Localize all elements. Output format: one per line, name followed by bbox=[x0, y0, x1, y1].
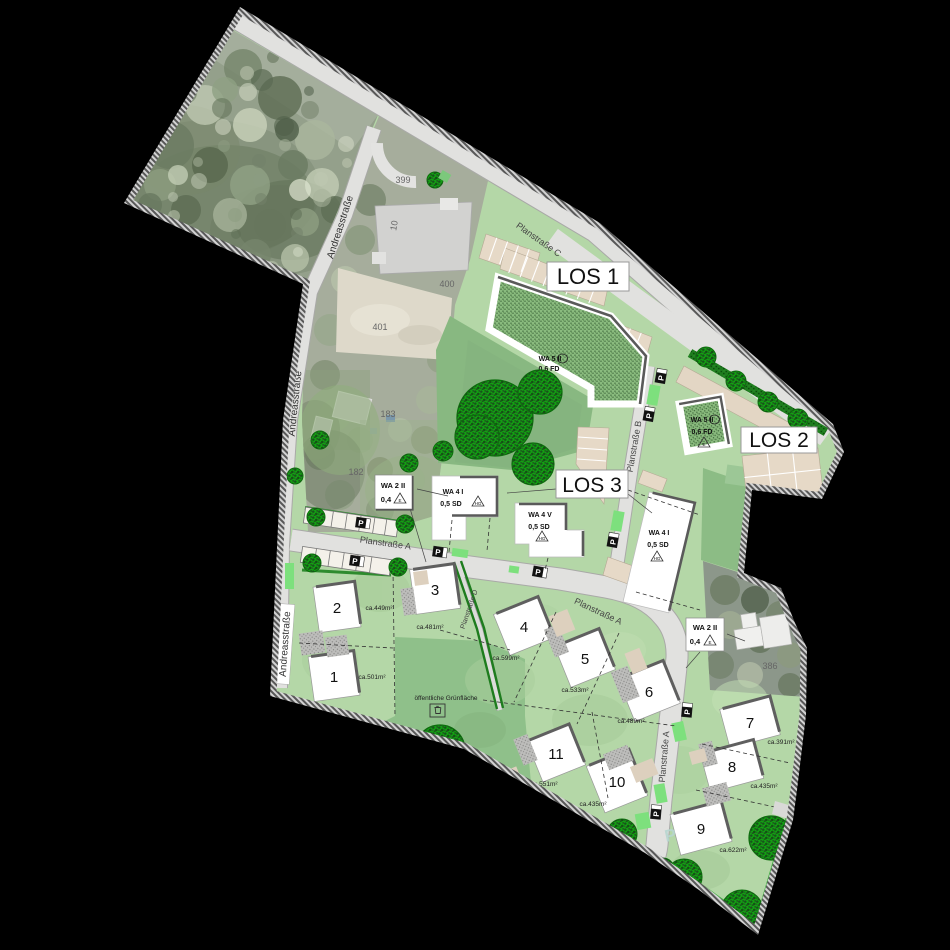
svg-text:ca.435m²: ca.435m² bbox=[750, 783, 778, 790]
svg-text:0,5 SD: 0,5 SD bbox=[528, 524, 549, 531]
svg-text:182: 182 bbox=[348, 467, 363, 477]
svg-text:LOS 1: LOS 1 bbox=[557, 264, 619, 289]
svg-text:ca.622m²: ca.622m² bbox=[719, 847, 747, 854]
svg-text:E: E bbox=[398, 498, 401, 503]
svg-text:ca.489m²: ca.489m² bbox=[617, 718, 645, 725]
svg-text:3: 3 bbox=[431, 582, 439, 599]
svg-text:WA 4 V: WA 4 V bbox=[528, 512, 552, 519]
svg-text:0,6 FD: 0,6 FD bbox=[691, 429, 712, 436]
svg-text:400: 400 bbox=[439, 279, 454, 289]
svg-text:8: 8 bbox=[728, 759, 736, 776]
svg-text:ca.533m²: ca.533m² bbox=[561, 687, 589, 694]
svg-text:401: 401 bbox=[372, 322, 387, 332]
svg-text:0,5 SD: 0,5 SD bbox=[647, 542, 668, 549]
svg-text:LOS 2: LOS 2 bbox=[749, 429, 809, 452]
svg-text:ca.435m²: ca.435m² bbox=[579, 801, 607, 808]
svg-text:WA 4 I: WA 4 I bbox=[649, 530, 670, 537]
svg-text:7: 7 bbox=[746, 715, 754, 732]
svg-text:10: 10 bbox=[388, 220, 400, 232]
svg-text:ca.599m²: ca.599m² bbox=[492, 655, 520, 662]
svg-text:HG: HG bbox=[539, 536, 546, 541]
svg-text:ca.501m²: ca.501m² bbox=[358, 674, 386, 681]
svg-text:10: 10 bbox=[609, 774, 626, 791]
svg-text:1: 1 bbox=[330, 669, 338, 686]
svg-text:6: 6 bbox=[645, 684, 653, 701]
svg-text:0,4: 0,4 bbox=[381, 495, 392, 504]
svg-text:E: E bbox=[702, 442, 705, 447]
svg-text:ca.481m²: ca.481m² bbox=[416, 624, 444, 631]
svg-text:WA 2 II: WA 2 II bbox=[693, 623, 717, 632]
svg-text:LOS 3: LOS 3 bbox=[562, 474, 622, 497]
svg-text:0,4: 0,4 bbox=[690, 637, 701, 646]
svg-text:0,5 SD: 0,5 SD bbox=[440, 501, 461, 508]
svg-text:9: 9 bbox=[697, 821, 705, 838]
svg-text:2: 2 bbox=[333, 600, 341, 617]
svg-text:E: E bbox=[708, 640, 711, 645]
svg-text:5: 5 bbox=[581, 651, 589, 668]
svg-text:386: 386 bbox=[762, 661, 777, 671]
svg-text:HG: HG bbox=[475, 501, 482, 506]
svg-text:WA 4 I: WA 4 I bbox=[443, 489, 464, 496]
svg-text:öffentliche Grünfläche: öffentliche Grünfläche bbox=[414, 695, 477, 702]
svg-text:ca.449m²: ca.449m² bbox=[365, 605, 393, 612]
svg-text:399: 399 bbox=[395, 175, 410, 185]
svg-text:11: 11 bbox=[548, 746, 564, 763]
svg-text:183: 183 bbox=[380, 409, 395, 419]
svg-text:4: 4 bbox=[520, 619, 528, 636]
svg-text:HG: HG bbox=[654, 556, 661, 561]
svg-text:ca.391m²: ca.391m² bbox=[767, 739, 795, 746]
svg-text:WA 2 II: WA 2 II bbox=[381, 481, 405, 490]
